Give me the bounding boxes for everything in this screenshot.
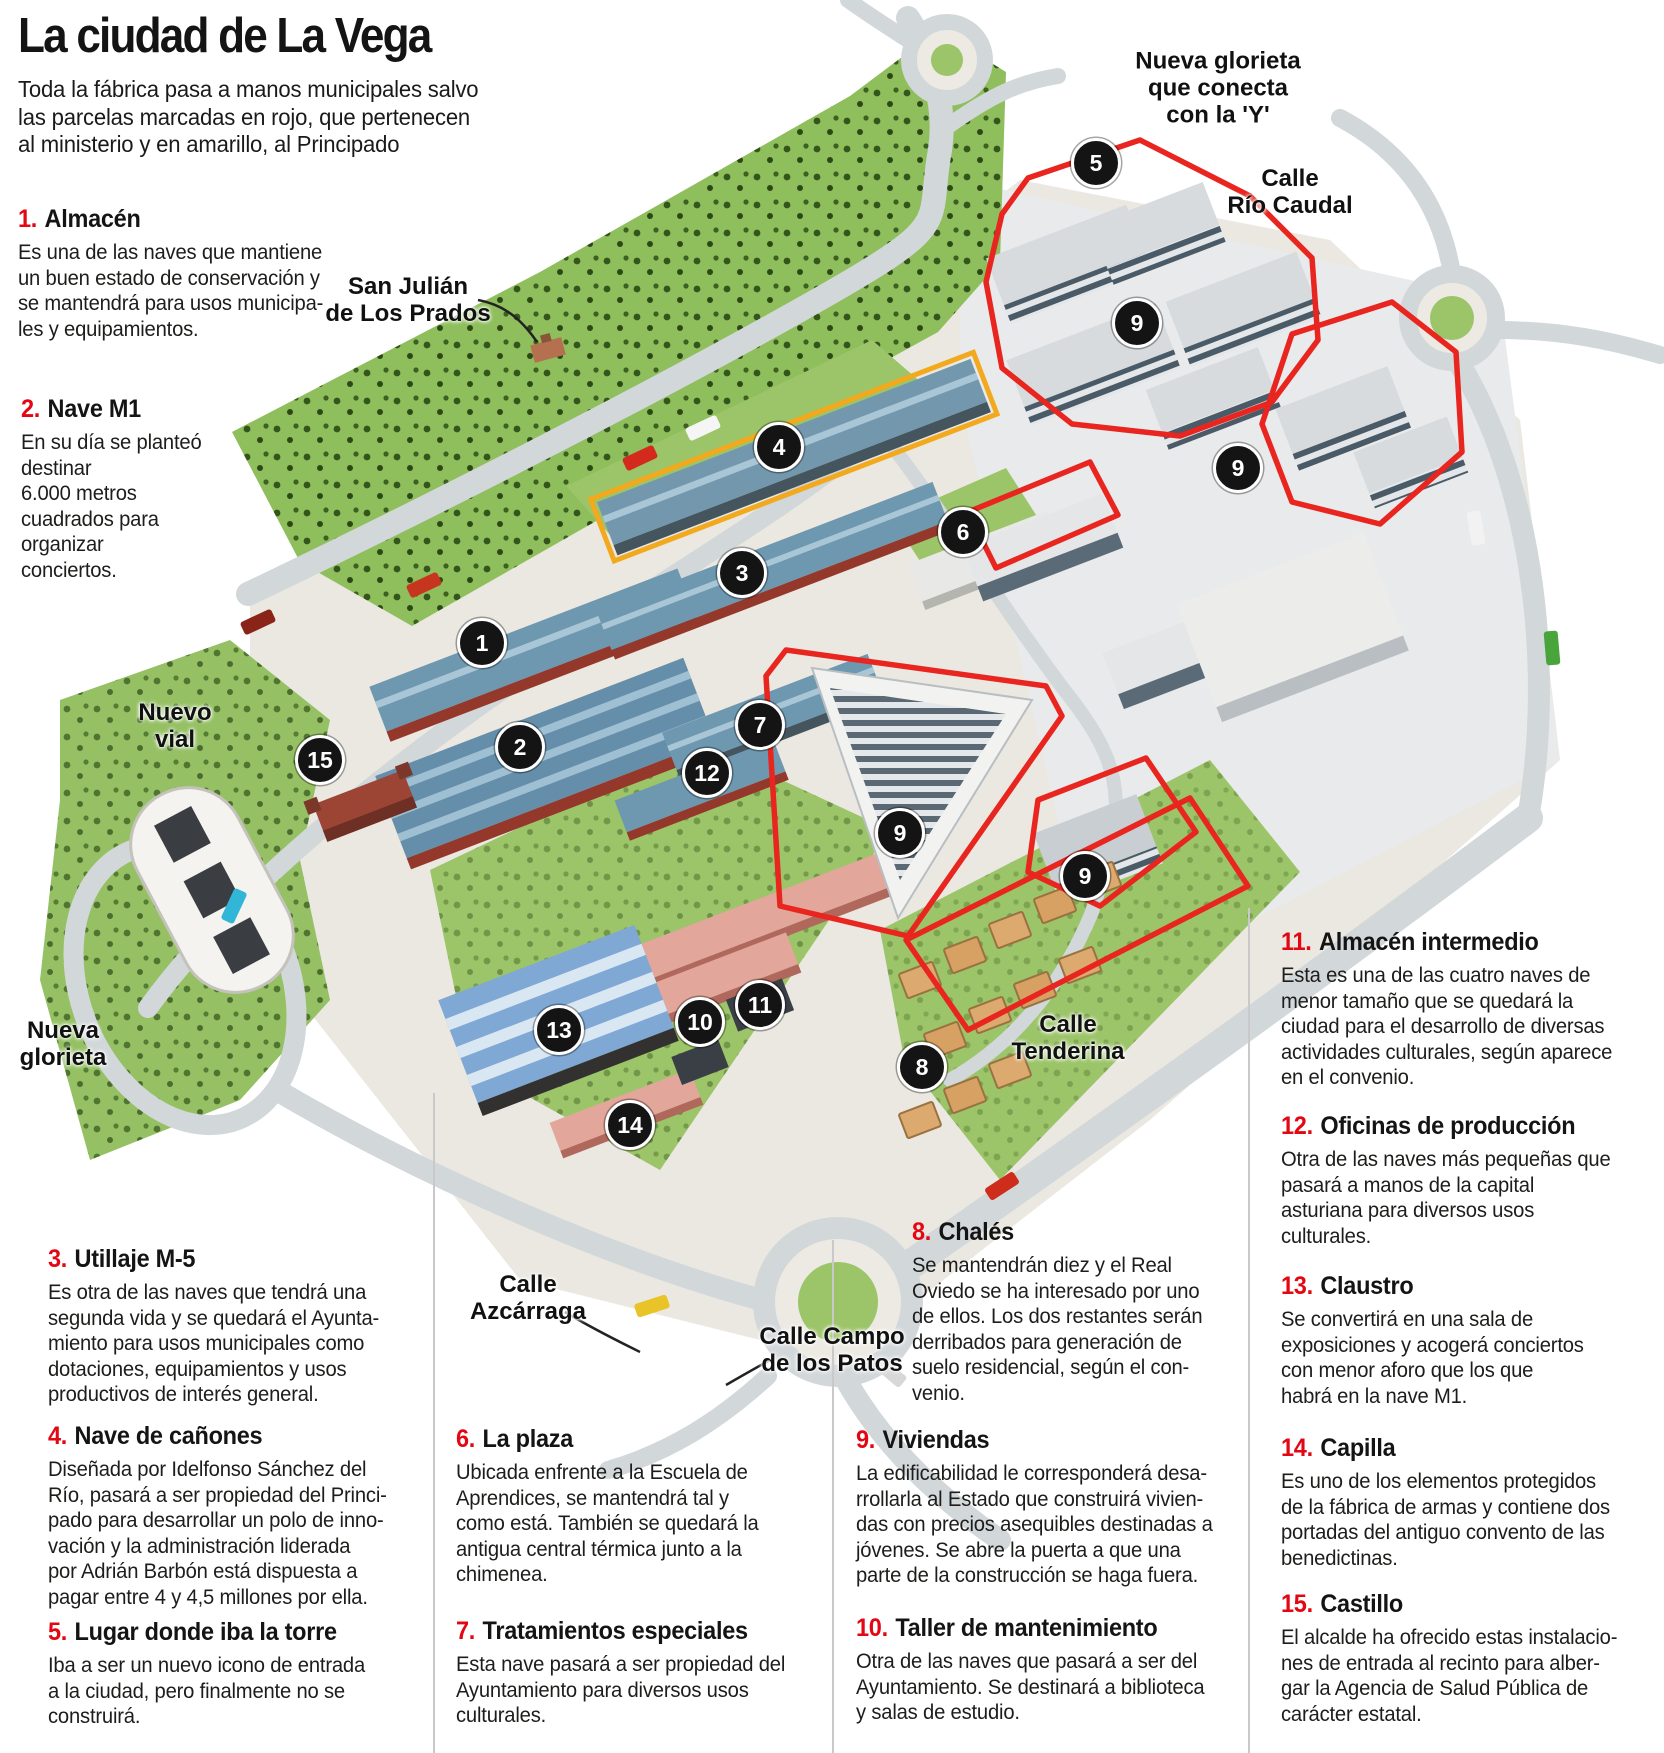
legend-item-10-body: Otra de las naves que pasará a ser del A… — [856, 1649, 1204, 1726]
legend-item-9-body: La edificabilidad le corresponderá desa-… — [856, 1461, 1213, 1589]
map-marker-9: 9 — [875, 808, 925, 858]
map-marker-7: 7 — [735, 700, 785, 750]
legend-item-4-body: Diseñada por Idelfonso Sánchez del Río, … — [48, 1457, 387, 1610]
infographic-page: La ciudad de La Vega Toda la fábrica pas… — [0, 0, 1664, 1753]
map-marker-15: 15 — [295, 735, 345, 785]
map-label-san-julian: San Julián de Los Prados — [325, 273, 490, 327]
map-marker-3: 3 — [717, 548, 767, 598]
legend-item-2-body: En su día se planteó destinar 6.000 metr… — [21, 430, 202, 583]
legend-item-12-body: Otra de las naves más pequeñas que pasar… — [1281, 1147, 1611, 1249]
map-marker-10: 10 — [675, 997, 725, 1047]
column-divider — [1248, 908, 1250, 1753]
legend-item-2: 2.Nave M1 En su día se planteó destinar … — [21, 395, 202, 583]
map-marker-4: 4 — [754, 422, 804, 472]
legend-item-15-body: El alcalde ha ofrecido estas instalacio-… — [1281, 1625, 1617, 1727]
legend-item-2-heading: 2.Nave M1 — [21, 395, 202, 424]
map-marker-2: 2 — [495, 722, 545, 772]
map-marker-11: 11 — [735, 980, 785, 1030]
legend-item-5-heading: 5.Lugar donde iba la torre — [48, 1618, 365, 1647]
map-marker-8: 8 — [897, 1042, 947, 1092]
map-marker-13: 13 — [534, 1005, 584, 1055]
page-subtitle: Toda la fábrica pasa a manos municipales… — [18, 76, 478, 159]
legend-item-11-body: Esta es una de las cuatro naves de menor… — [1281, 963, 1612, 1091]
map-marker-1: 1 — [457, 618, 507, 668]
legend-item-14-heading: 14.Capilla — [1281, 1434, 1610, 1463]
legend-item-10-heading: 10.Taller de mantenimiento — [856, 1614, 1204, 1643]
legend-item-8-body: Se mantendrán diez y el Real Oviedo se h… — [912, 1253, 1202, 1406]
legend-item-12-heading: 12.Oficinas de producción — [1281, 1112, 1611, 1141]
legend-item-15-heading: 15.Castillo — [1281, 1590, 1617, 1619]
legend-item-1-heading: 1.Almacén — [18, 205, 323, 234]
legend-item-13-body: Se convertirá en una sala de exposicione… — [1281, 1307, 1584, 1409]
legend-item-9: 9.Viviendas La edificabilidad le corresp… — [856, 1426, 1213, 1589]
legend-item-4-heading: 4.Nave de cañones — [48, 1422, 387, 1451]
legend-item-10: 10.Taller de mantenimiento Otra de las n… — [856, 1614, 1204, 1726]
map-label-calle-azcarraga: Calle Azcárraga — [470, 1271, 586, 1325]
column-divider — [832, 1240, 834, 1753]
legend-item-9-heading: 9.Viviendas — [856, 1426, 1213, 1455]
map-marker-9: 9 — [1112, 298, 1162, 348]
legend-item-3-body: Es otra de las naves que tendrá una segu… — [48, 1280, 379, 1408]
legend-item-14: 14.Capilla Es uno de los elementos prote… — [1281, 1434, 1610, 1571]
legend-item-5-body: Iba a ser un nuevo icono de entrada a la… — [48, 1653, 365, 1730]
legend-item-7-heading: 7.Tratamientos especiales — [456, 1617, 785, 1646]
map-label-calle-rio-caudal: Calle Río Caudal — [1227, 165, 1352, 219]
map-marker-6: 6 — [938, 507, 988, 557]
column-divider — [433, 1093, 435, 1753]
legend-item-11: 11.Almacén intermedio Esta es una de las… — [1281, 928, 1612, 1091]
legend-item-5: 5.Lugar donde iba la torre Iba a ser un … — [48, 1618, 365, 1730]
map-label-nuevo-vial: Nuevo vial — [138, 699, 211, 753]
legend-item-8: 8.Chalés Se mantendrán diez y el Real Ov… — [912, 1218, 1202, 1406]
legend-item-1: 1.Almacén Es una de las naves que mantie… — [18, 205, 323, 342]
map-label-nueva-glorieta: Nueva glorieta — [20, 1017, 107, 1071]
legend-item-15: 15.Castillo El alcalde ha ofrecido estas… — [1281, 1590, 1617, 1727]
legend-item-8-heading: 8.Chalés — [912, 1218, 1202, 1247]
page-title: La ciudad de La Vega — [18, 8, 430, 64]
map-marker-9: 9 — [1213, 443, 1263, 493]
legend-item-7: 7.Tratamientos especiales Esta nave pasa… — [456, 1617, 785, 1729]
map-marker-9: 9 — [1060, 851, 1110, 901]
legend-item-1-body: Es una de las naves que mantiene un buen… — [18, 240, 323, 342]
map-marker-14: 14 — [605, 1100, 655, 1150]
legend-item-14-body: Es uno de los elementos protegidos de la… — [1281, 1469, 1610, 1571]
map-label-nueva-glorieta-y: Nueva glorieta que conecta con la 'Y' — [1135, 48, 1300, 129]
map-label-calle-tenderina: Calle Tenderina — [1012, 1011, 1125, 1065]
legend-item-13-heading: 13.Claustro — [1281, 1272, 1584, 1301]
legend-item-12: 12.Oficinas de producción Otra de las na… — [1281, 1112, 1611, 1249]
legend-item-4: 4.Nave de cañones Diseñada por Idelfonso… — [48, 1422, 387, 1610]
legend-item-3: 3.Utillaje M-5 Es otra de las naves que … — [48, 1245, 379, 1408]
legend-item-6: 6.La plaza Ubicada enfrente a la Escuela… — [456, 1425, 759, 1588]
map-marker-12: 12 — [682, 748, 732, 798]
legend-item-11-heading: 11.Almacén intermedio — [1281, 928, 1612, 957]
legend-item-13: 13.Claustro Se convertirá en una sala de… — [1281, 1272, 1584, 1409]
map-marker-5: 5 — [1071, 138, 1121, 188]
map-label-calle-campo-de-los-patos: Calle Campo de los Patos — [759, 1323, 904, 1377]
legend-item-6-heading: 6.La plaza — [456, 1425, 759, 1454]
legend-item-7-body: Esta nave pasará a ser propiedad del Ayu… — [456, 1652, 785, 1729]
legend-item-6-body: Ubicada enfrente a la Escuela de Aprendi… — [456, 1460, 759, 1588]
legend-item-3-heading: 3.Utillaje M-5 — [48, 1245, 379, 1274]
